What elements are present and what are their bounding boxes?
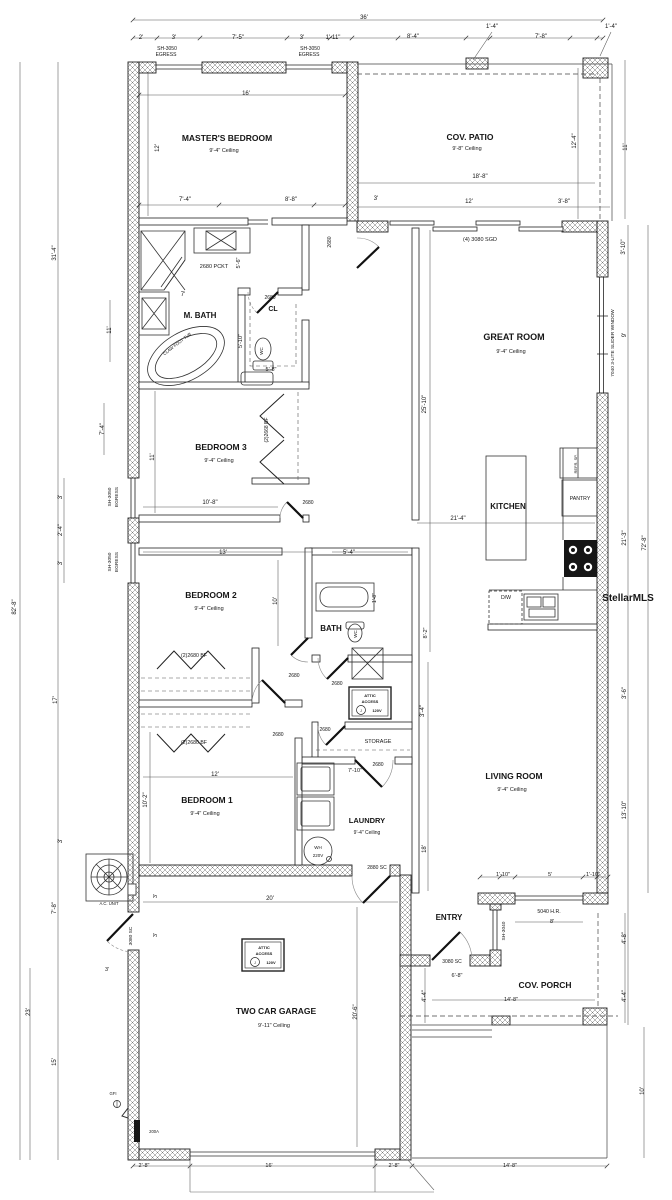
dim-11ft-left: 11' [107,326,113,333]
dim-7ft8-left: 7'-8" [52,902,58,914]
dim-8ft-porch: 8' [550,919,554,925]
floor-plan-page: 36'2'3'7'-5"3'1'-11"8'-4"1'-4"7'-8"1'-4"… [0,0,672,1200]
room-storage: STORAGE [365,739,392,745]
ceiling-garage: 9'-11" Ceiling [258,1023,290,1029]
watermark: StellarMLS [602,593,654,604]
door-2880-sc: 2880 SC [367,865,387,871]
ceiling-masters-bedroom: 9'-4" Ceiling [209,148,238,154]
dim-3ft-a: 3' [172,35,176,41]
dim-6ft8: 6'-8" [452,973,463,979]
dim-12ft4: 12'-4" [572,133,578,148]
room-bath: BATH [320,624,342,633]
dim-7ft4-master: 7'-4" [179,197,191,203]
window-sh3040: SH-3040 [501,921,507,940]
dim-10ft-porch: 10' [640,1087,646,1095]
ceiling-bedroom-1: 9'-4" Ceiling [190,811,219,817]
door-2680-bed3: 2680 [302,500,313,506]
window-7040-slider: 7040 3-LITE SLIDER WINDOW [610,309,616,377]
dim-3ft-g: 3' [153,933,159,937]
door-2680-pocket: 2680 PCKT [200,264,229,270]
dim-10ft-bed2: 10' [273,597,279,605]
dim-3ft-d: 3' [58,495,64,499]
dim-2ft8-b: 2'-8" [389,1163,400,1169]
dim-10ft8: 10'-8" [202,500,217,506]
fixture-wh: WH [314,845,322,850]
window-sh3050-2b: EGRESS [299,52,321,58]
dim-5ft4: 5'-4" [343,550,355,556]
dim-13ft: 13' [219,550,227,556]
door-leaves [107,247,460,960]
door-3080-sc-entry: 3080 SC [442,959,462,965]
window-sh3050-3a: SH-3050 [107,487,113,506]
door-2680-bifold-b: (2)2680 BF [181,740,207,746]
dim-4ft4-b: 4'-4" [422,990,428,1002]
dim-3ft-f: 3' [153,894,159,898]
dim-20ft6: 20'-6" [353,1004,359,1019]
fixture-200a-panel: 200A [149,1129,159,1134]
pocket-door [248,220,268,224]
dim-12ft-bed1: 12' [211,772,219,778]
room-bedroom-1: BEDROOM 1 [181,795,233,805]
dim-5ft6: 5'-6" [236,257,242,268]
dim-2ft: 2' [139,35,143,41]
room-cov-porch: COV. PORCH [518,980,571,990]
dim-1ft10-b: 1'-10" [586,872,600,878]
dimension-lines [20,20,648,1166]
ceiling-laundry: 9'-4" Ceiling [354,830,381,836]
dim-11ft-patio: 11' [623,143,629,150]
room-laundry: LAUNDRY [349,816,385,825]
dim-18ft: 18' [422,845,428,853]
dim-3ft-b: 3' [300,35,304,41]
badge1-attic: ATTIC [364,693,376,698]
dim-1ft4-b: 1'-4" [605,24,617,30]
range [564,540,597,577]
dim-3ft10: 3'-10" [621,239,627,254]
ceiling-cov-patio: 9'-8" Ceiling [452,146,481,152]
dim-1ft4-a: 1'-4" [486,24,498,30]
dim-7ft10: 7'-10" [348,768,362,774]
window-sh3050-4a: SH-3050 [107,552,113,571]
badge2-attic: ATTIC [258,945,270,950]
room-m-bath: M. BATH [184,311,217,320]
room-living-room: LIVING ROOM [485,771,542,781]
fixture-wc-bath: WC [353,630,358,638]
dim-2ft4: 2'-4" [58,524,64,536]
dim-31ft4: 31'-4" [52,245,58,260]
badge1-access: ACCESS [362,699,379,704]
dim-12ft-master: 12' [155,144,161,152]
dim-7ft4-left: 7'-4" [100,423,106,435]
room-great-room: GREAT ROOM [483,332,544,342]
dim-21ft3: 21'-3" [622,530,628,545]
dim-16ft: 16' [242,91,250,97]
dim-4ft4-a: 4'-4" [622,990,628,1002]
door-2680-bifold-a: (2)2680 BF [181,653,207,659]
dim-20ft: 20' [266,896,274,902]
window-sh3050-4b: EGRESS [114,552,120,572]
dim-72ft8: 72'-8" [642,535,648,550]
dim-1ft10-a: 1'-10" [496,872,510,878]
badge1-j: J [360,709,362,713]
dim-7ft-mbath: 7' [181,292,185,298]
dim-13ft10: 13'-10" [622,801,628,820]
dim-9ft: 9' [622,333,628,337]
dim-3ft-c: 3' [374,196,378,202]
room-kitchen: KITCHEN [490,502,526,511]
dim-10ft2: 10'-2" [143,792,149,807]
dim-3ft8: 3'-8" [558,199,570,205]
dim-4ft8: 4'-8" [622,932,628,944]
fixture-wc-master: WC [259,347,264,355]
room-pantry: PANTRY [570,496,591,502]
dim-3ft-i: 3' [105,967,109,973]
door-3080-sc-garage: 3080 SC [128,926,134,945]
room-bedroom-2: BEDROOM 2 [185,590,237,600]
fixture-refrigerator: REFR. SP. [573,454,578,473]
dim-25ft10: 25'-10" [422,395,428,414]
door-2680-master: 2680 [327,236,333,247]
dim-5ft8: 5'-8" [266,367,277,373]
room-entry: ENTRY [436,913,463,922]
window-sh3050-1b: EGRESS [156,52,178,58]
dim-8ft2: 8'-2" [423,627,429,638]
ceiling-bedroom-2: 9'-4" Ceiling [194,606,223,612]
dim-7ft5: 7'-5" [232,35,244,41]
dim-3ft4: 3'-4" [420,705,426,717]
dim-11ft-bed3: 11' [150,453,156,460]
room-cl: CL [268,306,278,313]
door-2680-cl: 2680 [264,295,275,301]
dim-1ft11: 1'-11" [326,35,341,41]
floor-plan-svg: 36'2'3'7'-5"3'1'-11"8'-4"1'-4"7'-8"1'-4"… [0,0,672,1200]
dim-14ft8-a: 14'-8" [504,997,518,1003]
dim-16ft-garage-door: 16' [265,1163,272,1169]
ceiling-bedroom-3: 9'-4" Ceiling [204,458,233,464]
door-sgd: (4) 3080 SGD [463,237,497,243]
dim-5ft-window: 5' [548,872,552,878]
dim-overall-width: 36' [360,15,368,21]
dim-8ft4: 8'-4" [407,34,419,40]
dim-8ft8: 8'-8" [285,197,297,203]
badge2-access: ACCESS [256,951,273,956]
dim-3ft-e: 3' [58,561,64,565]
room-bedroom-3: BEDROOM 3 [195,442,247,452]
dim-21ft4: 21'-4" [450,516,465,522]
fixture-dishwasher: D/W [501,595,511,601]
badge2-120v: 120V [266,960,276,965]
dim-82ft8: 82'-8" [12,599,18,614]
room-two-car-garage: TWO CAR GARAGE [236,1006,317,1016]
door-2680-bed2: 2680 [288,673,299,679]
door-2680-bath: 2680 [331,681,342,687]
dim-3ft6: 3'-6" [622,687,628,699]
dim-17ft: 17' [53,696,59,704]
door-2680-bed1: 2680 [272,732,283,738]
room-masters-bedroom: MASTER'S BEDROOM [182,133,272,143]
door-2668-bifold: (2)2668 BF [264,417,270,442]
window-sh3050-3b: EGRESS [114,487,120,507]
window-5040-hr: 5040 H.R. [537,909,560,915]
fixture-gfi: GFI [110,1091,117,1096]
dim-14ft8-b: 14'-8" [503,1163,517,1169]
room-cov-patio: COV. PATIO [446,132,493,142]
dim-3ft-h: 3' [58,839,64,843]
dim-23ft: 23' [26,1008,32,1016]
dim-2ft8-a: 2'-8" [139,1163,150,1169]
dim-18ft8: 18'-8" [472,174,487,180]
badge1-120v: 120V [372,708,382,713]
dim-15ft: 15' [52,1058,58,1066]
door-2680-storage: 2680 [319,727,330,733]
badge2-j: J [254,961,256,965]
fixture-wh-220v: 220V [313,853,324,858]
dim-1ft8: 1'-8" [372,593,378,603]
dim-12ft-patio: 12' [465,199,473,205]
fixture-ac-unit: A.C. UNIT [99,901,119,906]
door-2680-laundry: 2680 [372,762,383,768]
dim-7ft8-top: 7'-8" [535,34,547,40]
ceiling-living-room: 9'-4" Ceiling [497,787,526,793]
dim-5ft10: 5'-10" [238,334,244,348]
ceiling-great-room: 9'-4" Ceiling [496,349,525,355]
